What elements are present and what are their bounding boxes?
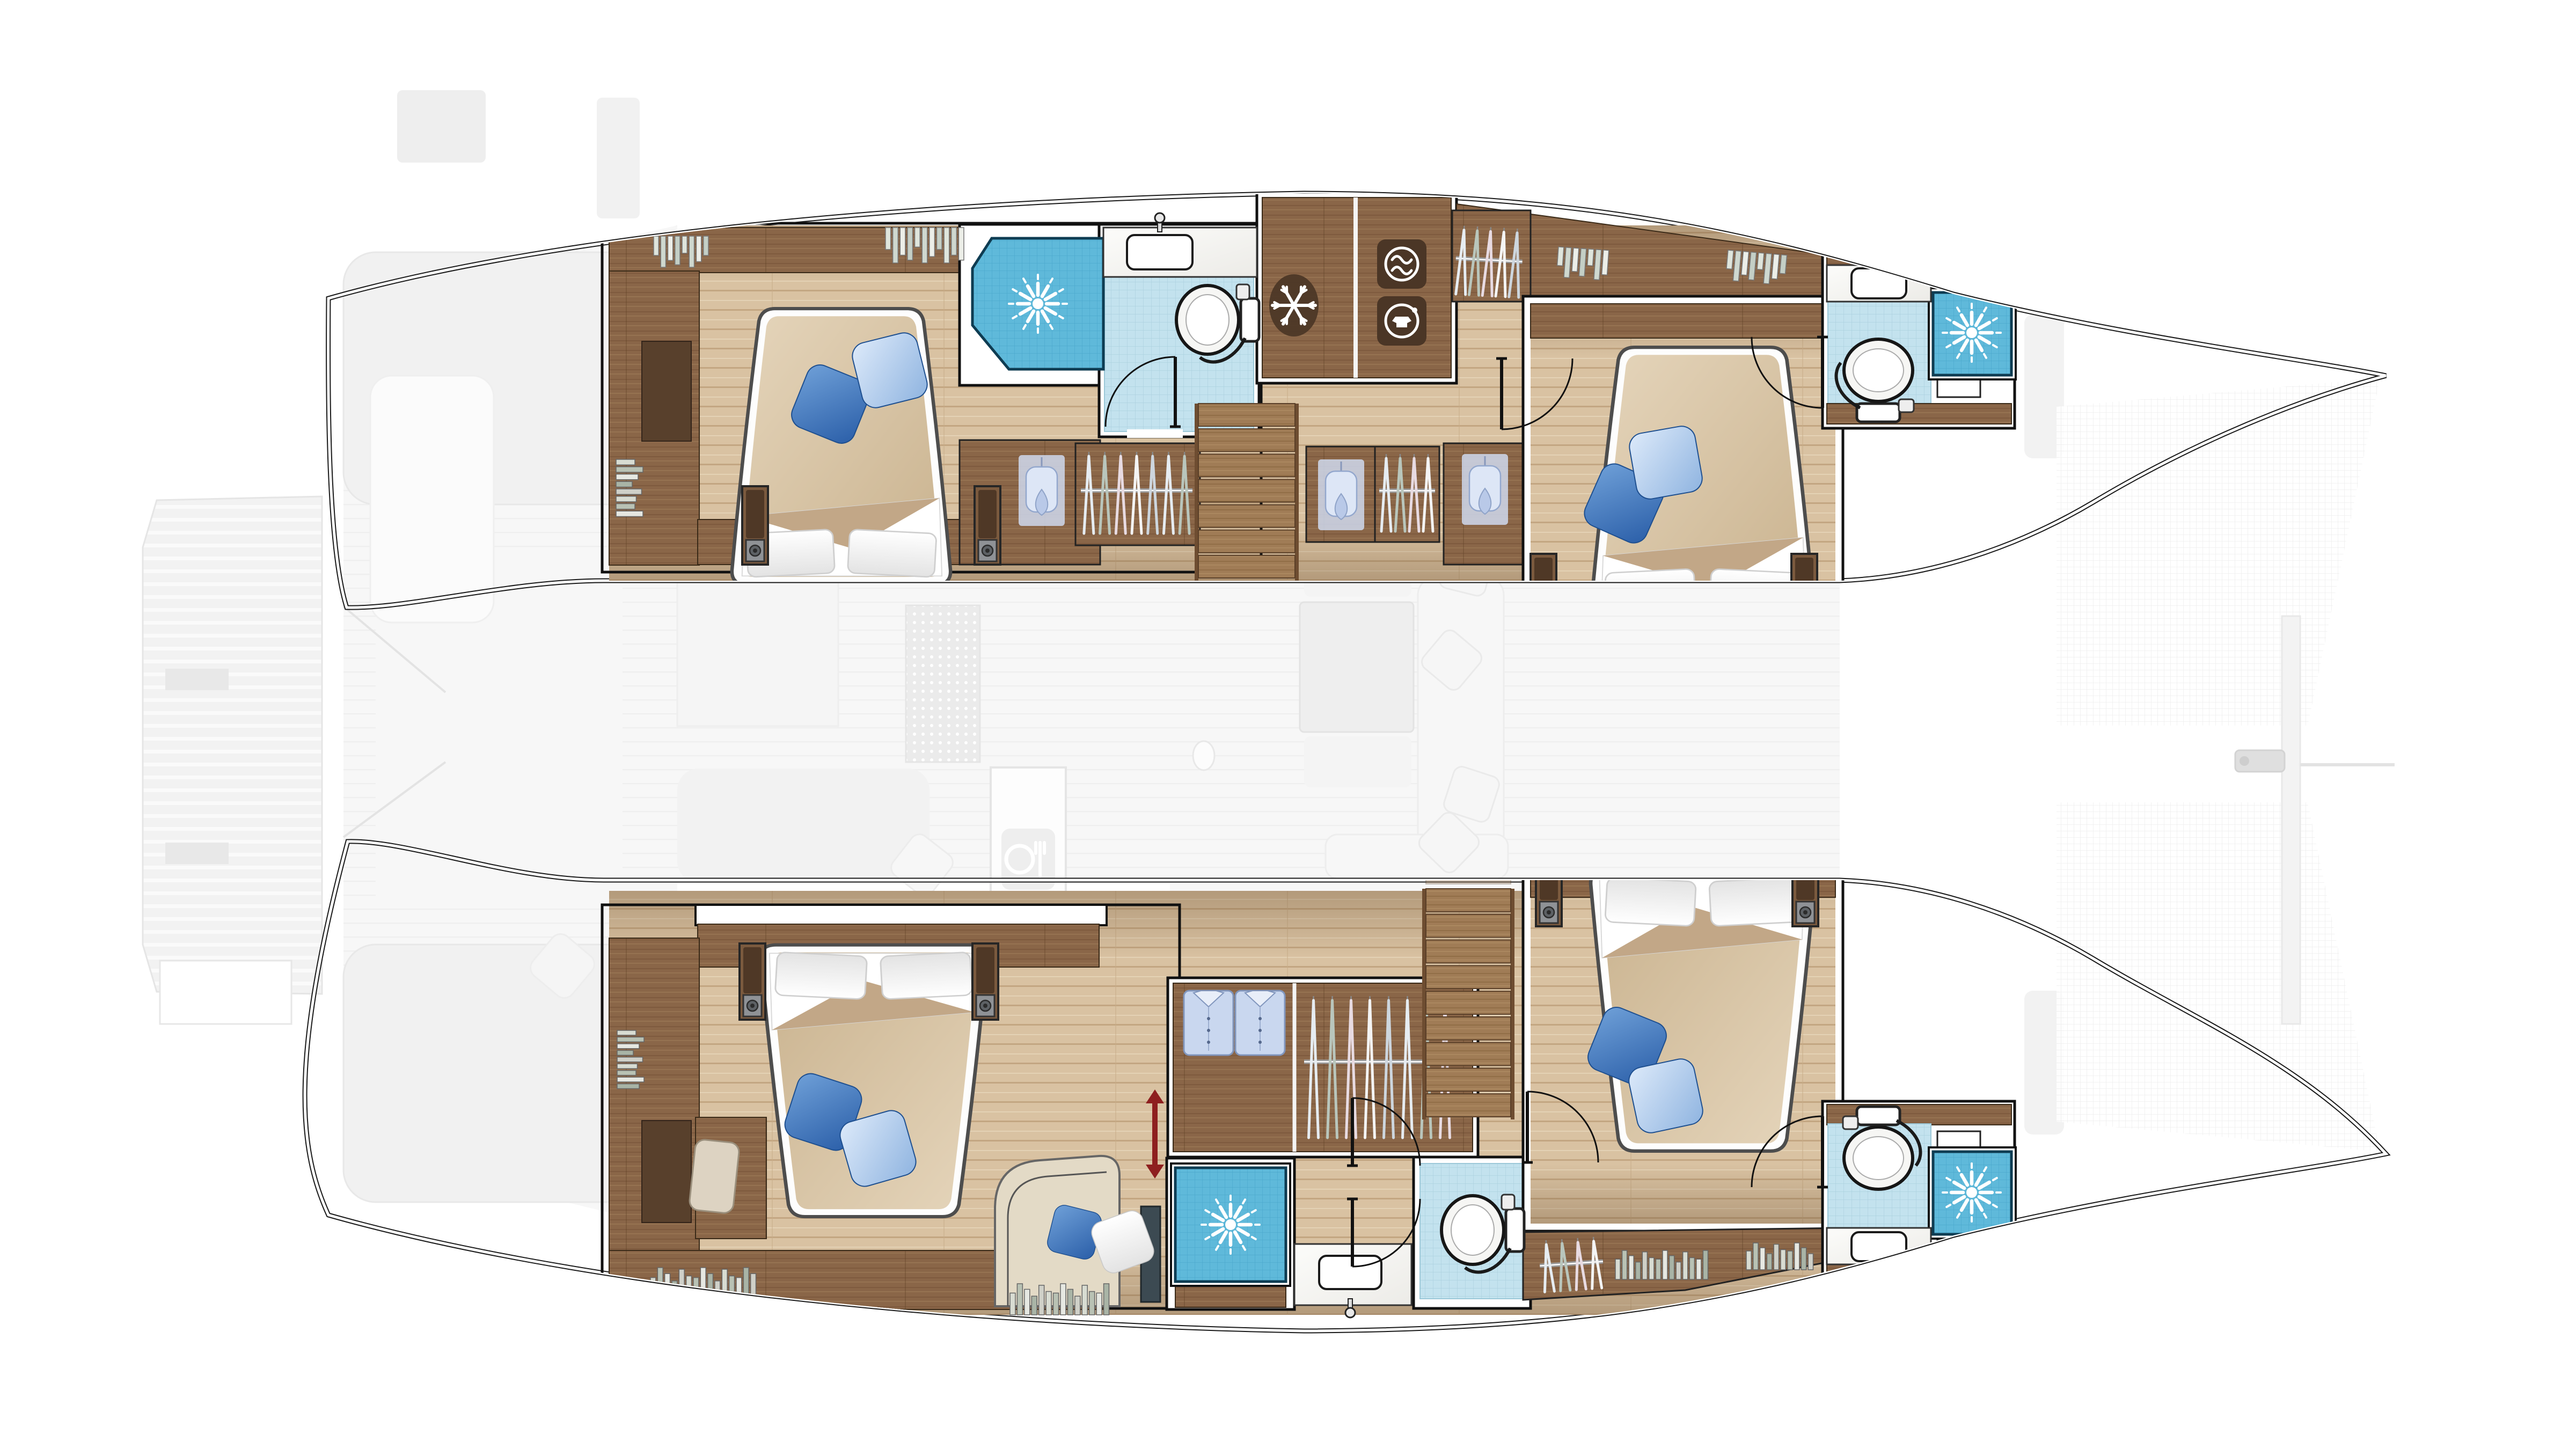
- bathrobe: [1019, 455, 1065, 526]
- ghost-windlass: [2240, 756, 2249, 766]
- leather-panel: [642, 1121, 691, 1223]
- ghost-saloon-sofa: [1326, 835, 1508, 879]
- ghost-davit: [597, 98, 640, 218]
- bathroom-door-gap: [1127, 429, 1183, 438]
- fan-icon: [1377, 239, 1426, 289]
- starboard-hull-plan: [602, 844, 2016, 1318]
- shower-bench: [1937, 379, 1980, 397]
- bathroom-wood-band: [1827, 404, 2011, 424]
- ghost-platform-latch: [165, 669, 229, 690]
- ghost-bowsprit: [2282, 616, 2300, 1024]
- bathrobe: [1318, 459, 1364, 530]
- shower-drawer: [1175, 1285, 1286, 1307]
- ghost-cockpit-seat: [343, 945, 644, 1202]
- books: [617, 1030, 644, 1089]
- shower: [972, 238, 1103, 369]
- washer-icon: [1377, 296, 1426, 346]
- ghost-helm-pod: [370, 376, 494, 623]
- speaker-panel: [972, 943, 998, 1020]
- floorplan-canvas: [0, 0, 2576, 1449]
- speaker-panel: [740, 943, 765, 1020]
- ghost-saloon-table: [1300, 602, 1414, 732]
- ghost-saloon-bench: [1304, 736, 1411, 787]
- bathrobe: [1462, 454, 1508, 525]
- port-hull-plan: [602, 192, 2016, 643]
- cabin-top-wall: [696, 905, 1107, 925]
- ghost-swim-platform: [143, 496, 322, 994]
- cabin-top-shelf: [1531, 304, 1835, 338]
- ghost-davit: [397, 90, 486, 163]
- ghost-heads: [677, 582, 838, 726]
- speaker-panel: [742, 486, 768, 565]
- ghost-platform-notch: [160, 961, 291, 1024]
- folded-shirt: [1235, 991, 1285, 1055]
- leather-panel: [642, 341, 691, 441]
- ghost-galley-mat: [906, 605, 980, 762]
- accent-pillow: [1627, 424, 1704, 501]
- accent-pillow: [1626, 1056, 1705, 1135]
- shower: [1171, 1163, 1290, 1286]
- catamaran-floorplan: [0, 0, 2576, 1449]
- speaker-panel: [975, 486, 1000, 565]
- ghost-foredeck-band: [1911, 726, 2286, 802]
- snowflake-icon: [1269, 274, 1319, 336]
- desk-cushion: [689, 1139, 740, 1214]
- ghost-table-leg: [1193, 741, 1214, 770]
- ghost-platform-latch: [165, 843, 229, 864]
- folded-shirt: [1184, 991, 1233, 1055]
